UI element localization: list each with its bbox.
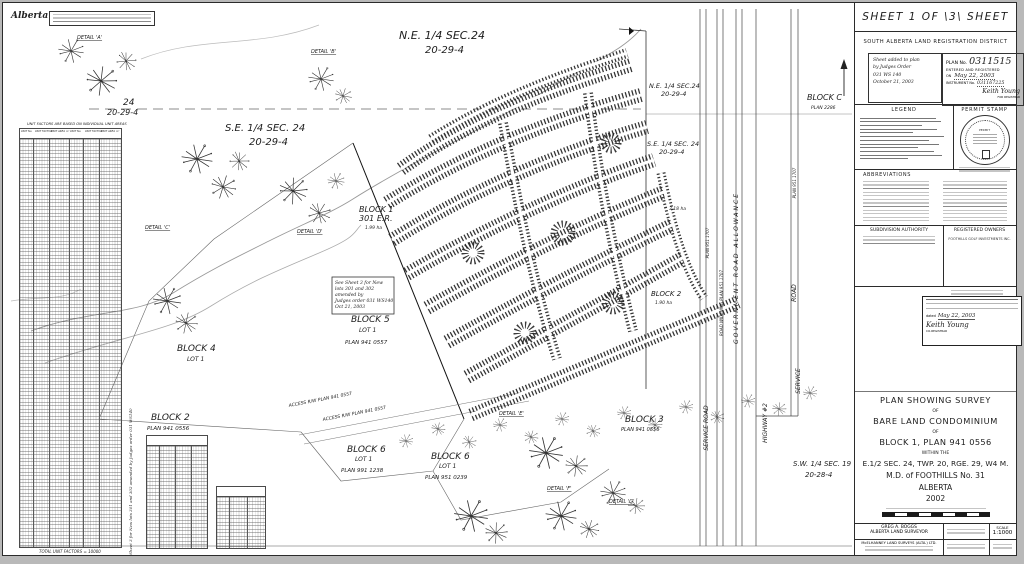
plan-label: PLAN 941 0557 bbox=[345, 340, 388, 346]
abbreviations-box: ABBREVIATIONS bbox=[855, 169, 1016, 225]
footer-cell-lines bbox=[993, 544, 1012, 550]
permit-word: PERMIT bbox=[961, 128, 1009, 132]
block-label: BLOCK 5 bbox=[351, 315, 390, 325]
note-line: amended by bbox=[335, 292, 364, 298]
firm-address-lines bbox=[865, 546, 933, 553]
on-label: ON bbox=[946, 74, 951, 78]
detail-label: DETAIL 'F' bbox=[547, 486, 572, 492]
road-label: HIGHWAY #2 bbox=[762, 403, 769, 443]
abbreviation-lines bbox=[943, 181, 1007, 221]
plan-registration-box: PLAN No. 0311515 ENTERED AND REGISTERED … bbox=[942, 53, 1024, 106]
plan-label: PLAN 941 0556 bbox=[147, 426, 190, 432]
note-line: See Sheet 3 for New bbox=[335, 280, 383, 286]
detail-label: DETAIL 'G' bbox=[609, 499, 635, 505]
sheet3-side-note: See Sheet 3 for New lots 301 and 302 ame… bbox=[128, 408, 133, 555]
subdivision-authority-box: SUBDIVISION AUTHORITY bbox=[855, 225, 944, 286]
note-line: Oct 21, 2003 bbox=[335, 304, 365, 310]
plan-label: PLAN 951 0239 bbox=[425, 475, 468, 481]
section-label: 24 bbox=[123, 98, 135, 108]
river-label: SHEEP RIVER bbox=[3, 3, 141, 5]
plan-label: PLAN 2286 bbox=[811, 105, 836, 111]
co-registrar-title: CO-REGISTRAR bbox=[926, 329, 1018, 333]
quarter-label: 20-29-4 bbox=[661, 90, 686, 98]
unit-factors-table: UNIT No. UNIT FACTOR UNIT AREA m² UNIT N… bbox=[19, 128, 122, 548]
permit-stamp-box: PERMIT STAMP PERMIT bbox=[953, 104, 1016, 169]
quarter-label: 20-28-4 bbox=[805, 471, 832, 479]
judges-order-note: Sheet added to plan by Judges Order 031 … bbox=[868, 53, 942, 103]
quarter-label: S.E. 1/4 SEC. 24 bbox=[225, 123, 305, 134]
legend-entries bbox=[855, 113, 953, 159]
quarter-label: 20-29-4 bbox=[249, 137, 288, 148]
instrument-number: 031167225 bbox=[977, 81, 1004, 87]
note-line: lots 301 and 302 bbox=[335, 286, 374, 292]
area-label: 1.90 ha bbox=[655, 300, 672, 306]
sheet-number-title: SHEET 1 OF \3\ SHEET bbox=[855, 11, 1016, 23]
abbreviations-title: ABBREVIATIONS bbox=[863, 172, 1016, 178]
block-label: BLOCK 2 bbox=[151, 413, 190, 423]
authority-lines bbox=[863, 236, 935, 245]
subdivision-lots bbox=[387, 53, 738, 415]
certification-note-box: dated May 22, 2003 Keith Young CO-REGIST… bbox=[922, 296, 1022, 346]
registrar-signature: Keith Young bbox=[946, 88, 1020, 95]
lot-label: LOT 1 bbox=[187, 356, 204, 363]
scale-bar-numbers bbox=[886, 508, 986, 511]
plan-no-label: PLAN No. bbox=[946, 61, 967, 66]
block-label: BLOCK C bbox=[807, 93, 842, 102]
curve-table bbox=[216, 486, 266, 549]
permit-seal-icon: PERMIT bbox=[960, 115, 1010, 165]
scale-bar bbox=[882, 512, 990, 517]
monument-flag-icon bbox=[629, 27, 634, 35]
unit-note-label: UNIT FACTORS ARE BASED ON INDIVIDUAL UNI… bbox=[27, 122, 127, 126]
access-rw-label: ACCESS R/W PLAN 941 0557 bbox=[321, 405, 386, 423]
title-line: M.D. of FOOTHILLS No. 31 bbox=[855, 471, 1016, 480]
footer-block: GREG A. BOGGS ALBERTA LAND SURVEYOR McEL… bbox=[855, 523, 1016, 555]
section-lines bbox=[19, 29, 852, 546]
quarter-label: 20-29-4 bbox=[659, 148, 684, 156]
road-label: SERVICE ROAD bbox=[703, 405, 710, 451]
note-line: 031 WS 140 bbox=[873, 72, 941, 79]
note-line: Sheet added to plan bbox=[873, 57, 941, 64]
title-block: PLAN SHOWING SURVEY OF BARE LAND CONDOMI… bbox=[855, 395, 1016, 517]
curve-table bbox=[146, 435, 208, 549]
title-line: OF bbox=[855, 430, 1016, 435]
surveyor-title: ALBERTA LAND SURVEYOR bbox=[855, 530, 943, 535]
title-line: BLOCK 1, PLAN 941 0556 bbox=[855, 437, 1016, 447]
title-line: OF bbox=[855, 409, 1016, 414]
block-label: BLOCK 6 bbox=[431, 452, 470, 462]
unit-total-label: TOTAL UNIT FACTORS = 10000 bbox=[39, 549, 101, 554]
survey-plan-sheet: SHEEP RIVER N.E. 1/4 SEC.24 20-29-4 24 2… bbox=[2, 2, 1017, 556]
lot-label: LOT 1 bbox=[355, 456, 372, 463]
quarter-label: N.E. 1/4 SEC.24 bbox=[649, 82, 700, 90]
dated-label: dated bbox=[926, 314, 936, 318]
detail-label: DETAIL 'E' bbox=[499, 411, 524, 417]
note-line: Judges order 031 WS140 bbox=[334, 298, 393, 304]
detail-label: DETAIL 'B' bbox=[311, 49, 336, 55]
quarter-label: S.W. 1/4 SEC. 19 bbox=[793, 460, 852, 468]
road-label: SERVICE bbox=[795, 368, 802, 394]
road-label: ROAD bbox=[791, 284, 798, 302]
block-label: BLOCK 3 bbox=[625, 415, 664, 425]
title-panel: SHEET 1 OF \3\ SHEET SOUTH ALBERTA LAND … bbox=[854, 3, 1016, 555]
road-lines bbox=[700, 9, 798, 546]
registration-district: SOUTH ALBERTA LAND REGISTRATION DISTRICT bbox=[855, 39, 1016, 45]
instrument-label: INSTRUMENT No. bbox=[946, 81, 975, 85]
title-line: PLAN SHOWING SURVEY bbox=[855, 395, 1016, 405]
footer-cell-lines bbox=[947, 544, 985, 550]
plan-number: 0311515 bbox=[969, 56, 1011, 67]
legend-box: LEGEND bbox=[855, 104, 954, 169]
co-registrar-signature: Keith Young bbox=[926, 321, 1018, 329]
block-1-er: 301 E.R. bbox=[359, 214, 393, 223]
alberta-logo: Alberta bbox=[11, 11, 48, 21]
certification-fine-print bbox=[926, 299, 1018, 312]
detail-label: DETAIL 'A' bbox=[77, 35, 102, 41]
section-label: 20-29-4 bbox=[107, 108, 138, 117]
owner-name: FOOTHILLS GOLF INVESTMENTS INC. bbox=[943, 237, 1016, 241]
block-label: BLOCK 4 bbox=[177, 344, 216, 354]
lot-label: LOT 1 bbox=[359, 327, 376, 334]
disclaimer-box bbox=[49, 11, 155, 26]
road-label: GOVERNMENT ROAD ALLOWANCE bbox=[733, 192, 740, 344]
title-line: ALBERTA bbox=[855, 483, 1016, 492]
abbreviation-lines bbox=[863, 181, 929, 221]
survey-firm: McELHANNEY LAND SURVEYS (ALTA.) LTD. bbox=[855, 541, 943, 545]
title-line: WITHIN THE bbox=[855, 451, 1016, 456]
registered-owners-title: REGISTERED OWNERS bbox=[943, 228, 1016, 233]
note-line: by Judges Order bbox=[873, 64, 941, 71]
registrar-title: FOR REGISTRAR bbox=[946, 95, 1020, 99]
quarter-label: 20-29-4 bbox=[425, 45, 464, 56]
footer-cell-lines bbox=[947, 529, 985, 535]
plan-label: PLAN 951 1707 bbox=[792, 167, 797, 198]
access-rw-label: ACCESS R/W PLAN 941 0557 bbox=[287, 391, 352, 409]
road-label: ROAD WIDENING PLAN 951 1707 bbox=[719, 270, 724, 336]
block-1-label: BLOCK 1 bbox=[359, 205, 393, 214]
area-label: 1.99 ha bbox=[365, 225, 382, 231]
block-label: BLOCK 6 bbox=[347, 445, 386, 455]
lot-label: LOT 1 bbox=[439, 463, 456, 470]
note-line: October 21, 2003 bbox=[873, 79, 941, 86]
plan-label: PLAN 941 0556 bbox=[621, 427, 659, 433]
area-label: 3.18 ha bbox=[669, 206, 686, 212]
detail-label: DETAIL 'D' bbox=[297, 229, 322, 235]
title-line: BARE LAND CONDOMINIUM bbox=[855, 416, 1016, 426]
quarter-label: S.E. 1/4 SEC. 24 bbox=[647, 140, 699, 148]
permit-stamp-title: PERMIT STAMP bbox=[953, 107, 1016, 113]
registered-owners-box: REGISTERED OWNERS FOOTHILLS GOLF INVESTM… bbox=[943, 225, 1016, 286]
plan-label: PLAN 951 1707 bbox=[705, 227, 710, 258]
quarter-label: N.E. 1/4 SEC.24 bbox=[399, 29, 485, 42]
detail-label: DETAIL 'C' bbox=[145, 225, 170, 231]
block-label: BLOCK 2 bbox=[651, 290, 682, 298]
subdivision-authority-title: SUBDIVISION AUTHORITY bbox=[855, 228, 943, 233]
registration-date: May 22, 2003 bbox=[954, 73, 994, 80]
scale-value: 1:1000 bbox=[989, 530, 1016, 536]
unit-table-header: UNIT No. UNIT FACTOR UNIT AREA m² UNIT N… bbox=[20, 129, 121, 139]
plan-label: PLAN 991 1238 bbox=[341, 468, 384, 474]
disclaimer-text-lines bbox=[53, 14, 151, 22]
entered-registered-label: ENTERED AND REGISTERED bbox=[946, 68, 1020, 72]
certification-date: May 22, 2003 bbox=[938, 313, 976, 320]
title-line: 2002 bbox=[855, 494, 1016, 503]
title-line: E.1/2 SEC. 24, TWP. 20, RGE. 29, W4 M. bbox=[855, 459, 1016, 468]
